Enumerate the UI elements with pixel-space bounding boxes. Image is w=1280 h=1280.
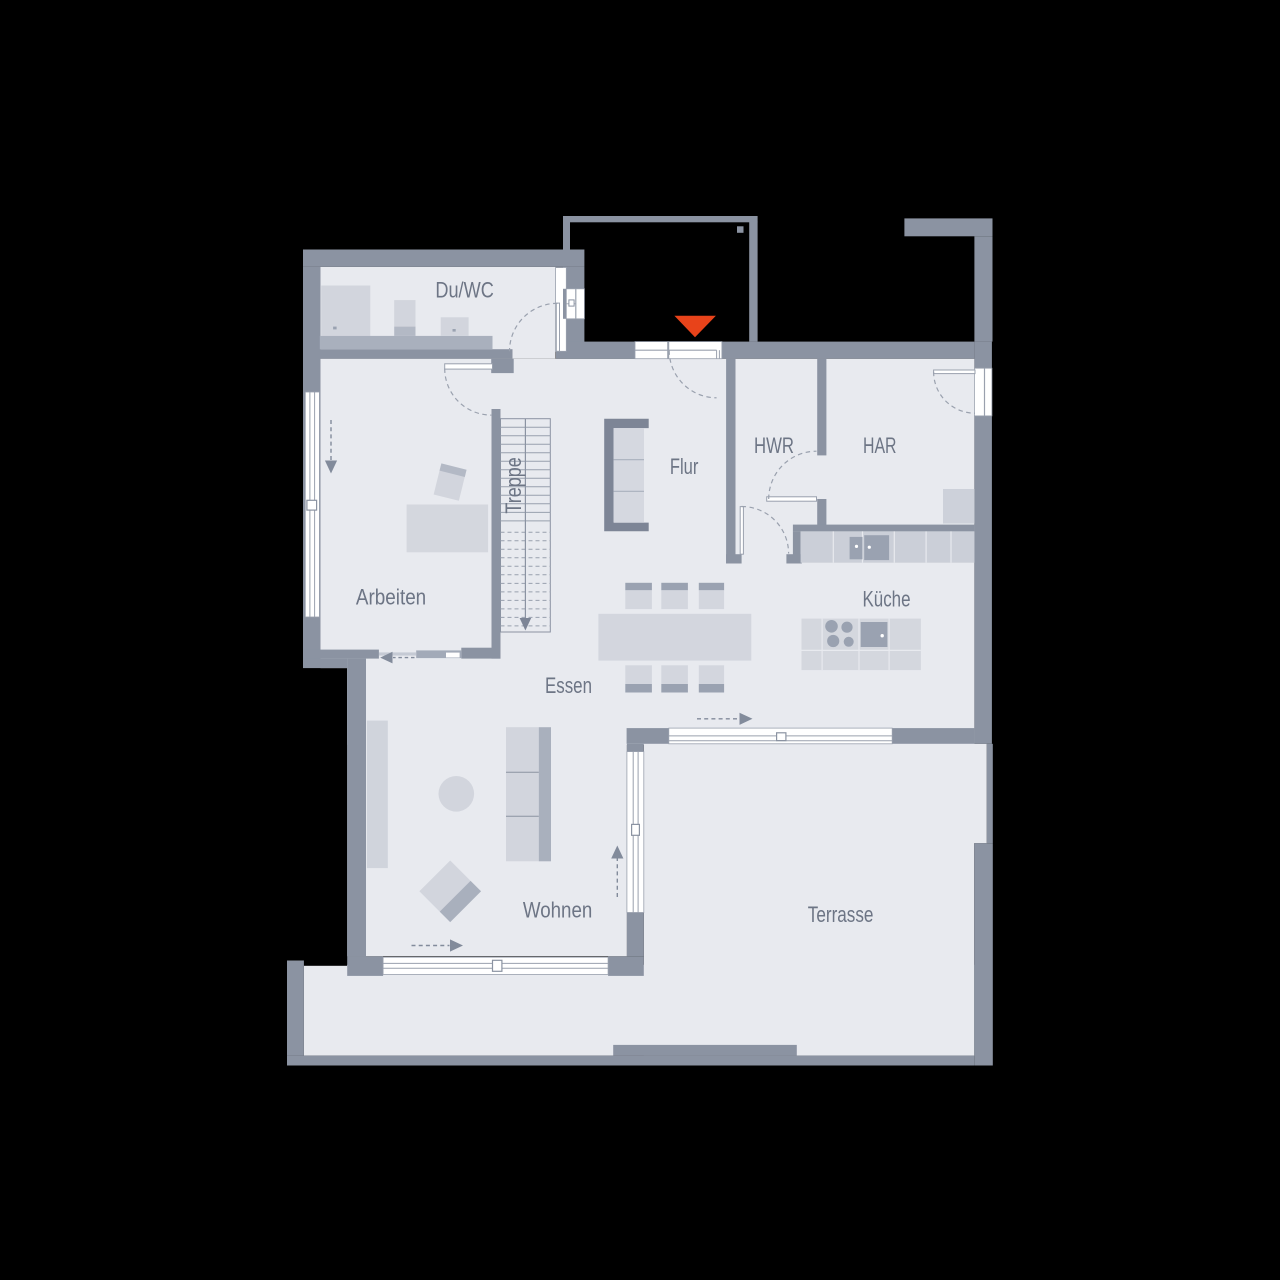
svg-text:Treppe: Treppe: [501, 457, 526, 513]
svg-text:HAR: HAR: [863, 433, 897, 458]
svg-text:Küche: Küche: [863, 587, 911, 612]
svg-text:HWR: HWR: [754, 433, 794, 458]
svg-text:Flur: Flur: [670, 454, 699, 479]
svg-text:Du/WC: Du/WC: [435, 277, 493, 302]
svg-text:Terrasse: Terrasse: [808, 902, 874, 927]
svg-text:Wohnen: Wohnen: [523, 898, 592, 923]
svg-text:Arbeiten: Arbeiten: [356, 584, 426, 609]
svg-text:Essen: Essen: [545, 673, 592, 698]
